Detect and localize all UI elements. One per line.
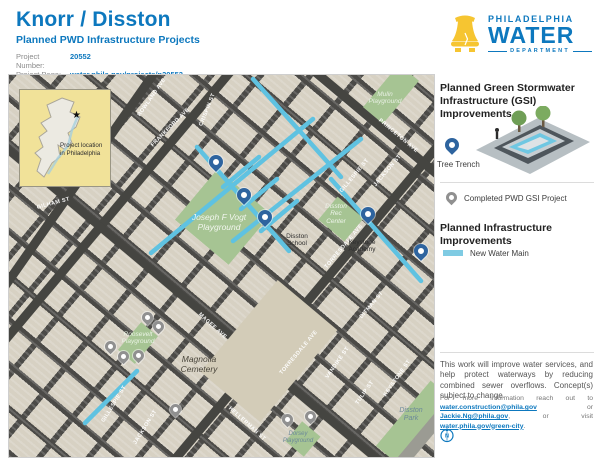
project-map: ROWLAND AVE FRANKFORD AVE CRISPIN ST GIL… — [8, 74, 435, 458]
fineprint-end: . — [523, 423, 525, 430]
landmark-label-roosevelt: Roosevelt Playground — [115, 331, 161, 346]
rule-right — [573, 51, 592, 52]
inset-map: ★ Project location in Philadelphia — [19, 89, 111, 187]
completed-gsi-pin — [280, 412, 296, 428]
page-subtitle: Planned PWD Infrastructure Projects — [16, 34, 316, 46]
fineprint-sep2: , or visit — [508, 413, 593, 420]
landmark-label-keystone-academy: Keystone Academy — [343, 239, 381, 254]
sidebar-divider — [440, 352, 594, 353]
street-label: VANDIKE ST — [325, 346, 351, 380]
completed-gsi-pin — [168, 402, 184, 418]
tree-trench-legend-icon — [442, 135, 462, 155]
street-label: KEYSTONE ST — [383, 359, 413, 398]
tree-trench-pin — [411, 241, 431, 261]
rule-left — [488, 51, 507, 52]
fineprint-sep1: or — [537, 404, 593, 411]
street-label: GILLESPIE ST — [100, 385, 127, 424]
completed-gsi-legend-icon — [444, 190, 460, 206]
field-row: Project Number: 20552 — [16, 52, 316, 70]
page: Knorr / Disston Planned PWD Infrastructu… — [0, 0, 600, 463]
location-star-icon: ★ — [72, 110, 81, 121]
tree-trench-pin — [206, 152, 226, 172]
water-main-swatch — [443, 250, 463, 256]
field-label: Project Number: — [16, 52, 70, 70]
water-main-label: New Water Main — [470, 249, 529, 258]
fineprint: For more information reach out to water.… — [440, 394, 593, 431]
sidebar-divider — [440, 182, 594, 183]
street-label: PRINCETON AVE — [377, 118, 419, 155]
philadelphia-outline — [22, 92, 108, 182]
planned-heading: Planned Infrastructure Improvements — [440, 222, 592, 248]
landmark-label-disston-school: Disston School — [280, 233, 314, 248]
project-number: 20552 — [70, 52, 91, 70]
landmark-label-cemetery: Magnolia Cemetery — [175, 355, 223, 375]
fineprint-pre: For more information reach out to — [440, 395, 593, 402]
landmark-label-dorsey: Dorsey Playground — [281, 431, 315, 445]
north-compass-icon: N — [439, 427, 455, 443]
street-label: TULIP ST — [355, 380, 376, 406]
logo-department: DEPARTMENT — [488, 48, 592, 54]
logo-water: WATER — [488, 24, 592, 47]
landmark-label-mulin: Mulin Playground — [363, 91, 407, 106]
street-label: GILLESPIE ST — [339, 158, 371, 194]
street-label: DITMAN ST — [359, 290, 385, 320]
completed-gsi-label: Completed PWD GSI Project — [464, 194, 567, 203]
landmark-label-disston-park: Disston Park — [393, 407, 429, 423]
street-label: JACKSON ST — [132, 409, 158, 446]
email-link-jackie-ng[interactable]: Jackie.Ng@phila.gov — [440, 413, 508, 420]
page-title: Knorr / Disston — [16, 8, 316, 32]
liberty-bell-icon — [448, 12, 482, 60]
pwd-logo: PHILADELPHIA WATER DEPARTMENT — [448, 10, 594, 62]
landmark-label-vogt: Joseph F Vogt Playground — [183, 213, 255, 233]
logo-department-text: DEPARTMENT — [510, 48, 570, 54]
tree-trench-illustration — [468, 106, 594, 176]
street-label: JACKSON ST — [373, 154, 403, 188]
inset-caption: Project location in Philadelphia — [60, 142, 106, 158]
email-link-water-construction[interactable]: water.construction@phila.gov — [440, 404, 537, 411]
logo-text: PHILADELPHIA WATER DEPARTMENT — [488, 14, 592, 54]
compass-n-label: N — [445, 434, 449, 440]
landmark-label-rec-center: Disston Rec Center — [321, 203, 351, 225]
